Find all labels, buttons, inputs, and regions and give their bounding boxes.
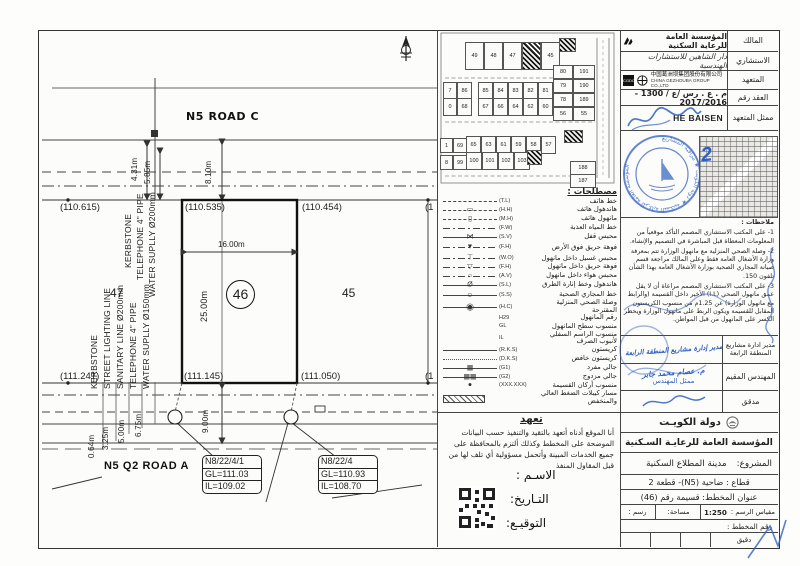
- keyplan-cell: 80: [553, 65, 573, 79]
- pledge-title: تعهد: [520, 413, 543, 425]
- keyplan-cell: 57: [541, 136, 556, 154]
- keyplan-hatch-block: [527, 150, 542, 165]
- street-lighting-icon: Ø: [441, 281, 499, 289]
- level-top-edge: (1: [425, 202, 433, 213]
- legend-label: وصلة الصحي المنزلية المقترحة: [539, 299, 617, 314]
- utility-bottom-water: WATER SUPLLY Ø150mm: [141, 284, 151, 389]
- sector-row: قطاع : ضاحية (N5)- قطعة 2: [620, 475, 778, 490]
- kerbstone-icon: [441, 346, 499, 354]
- legend-code: (F.W): [499, 225, 539, 231]
- representative-row: HE BAISEN ممثل المتعهد: [620, 106, 778, 131]
- project-name: مدينة المطلاع السكنية: [646, 459, 727, 469]
- legend-label: جالي مزدوج: [539, 373, 617, 380]
- owner-label: المالك: [727, 30, 778, 51]
- auditor-signature: [639, 393, 709, 411]
- keyplan-cell: 1: [440, 138, 453, 153]
- pledge-body: أنا الموقع أدناه أتعهد بالتقيد والتنفيذ …: [444, 427, 614, 471]
- consultant-row: دار الشاهين للاستشارات الهندسية الاستشار…: [620, 52, 778, 71]
- legend-label: مسار كيبلات الضغط العالي والمنخفض: [539, 390, 617, 405]
- keyplan-cell: 100: [466, 152, 482, 170]
- legend-label: كريستون خافض: [539, 355, 617, 362]
- legend-title: مصطلحات :: [441, 187, 617, 197]
- representative-label: ممثل المتعهد: [727, 106, 778, 130]
- keyplan-cell: 64: [508, 98, 523, 116]
- legend-code: H29: [499, 315, 539, 321]
- keyplan-mosque-hatch: [559, 38, 576, 52]
- sheet-title-text: عنوان المخطط: قسيمة رقم (46): [641, 492, 758, 502]
- keyplan-cell: 69: [453, 138, 467, 153]
- legend-label: هاندهول وخط إنارة الطرق: [539, 281, 617, 288]
- keyplan-cell: 56: [553, 107, 573, 121]
- telephone-manhole-icon: ▯: [441, 215, 499, 223]
- fire-hydrant-icon: ▼: [441, 243, 499, 251]
- legend-label: منسوب الراسم السفلي لأنبوب الصرف: [539, 331, 617, 346]
- utility-bottom-kerbstone: KERBSTONE: [89, 335, 99, 389]
- projects-director-stamp: مدير إدارة مشاريع المنطقة الرابعة: [625, 342, 723, 357]
- keyplan-cell: 60: [538, 98, 553, 116]
- legend-code: (M.H): [499, 216, 539, 222]
- keyplan-cell: 0: [443, 98, 457, 116]
- legend-code: IL: [499, 335, 539, 341]
- revision-cell-divider: [680, 533, 681, 547]
- legend-code: (T.L): [499, 198, 539, 204]
- level-bottom-center: (111.145): [184, 371, 223, 382]
- projects-director-row: مدير إدارة مشاريع المنطقة الرابعة مدير ا…: [620, 336, 778, 364]
- legend-code: (W.O): [499, 255, 539, 261]
- consultant-label: الاستشاري: [727, 52, 778, 70]
- sector-text: قطاع : ضاحية (N5)- قطعة 2: [648, 477, 749, 487]
- legend-label: رقم المانهول: [539, 314, 617, 321]
- country-name: دولة الكويـت: [659, 417, 721, 428]
- legend-label: منسوب سطح المانهول: [539, 323, 617, 330]
- manhole-gl: GL=111.03: [203, 468, 261, 481]
- manhole-number-icon: [441, 314, 499, 322]
- legend-code: (R.K.S): [499, 347, 539, 353]
- contractor-row: CGDC 中国葛洲坝集团股份有限公司 CHINA GEZHOUBA GROUP …: [620, 71, 778, 90]
- dim-585: 5.85m: [143, 161, 152, 184]
- keyplan-cell: 66: [493, 98, 508, 116]
- authority-round-stamp: المؤسسة العامة للرعاية السكنية ★ دولة ال…: [621, 133, 703, 215]
- double-gully-icon: ▦▦: [441, 373, 499, 381]
- legend-label: خط هاتف: [539, 198, 617, 205]
- legend-code: (H.C): [499, 304, 539, 310]
- keyplan-cell: 191: [573, 65, 595, 79]
- manhole-gl: GL=110.93: [319, 468, 377, 481]
- blue-check-mark: [742, 512, 792, 564]
- drawn-by-label: رسم :: [629, 508, 647, 516]
- stop-valve-icon: ⋈: [441, 233, 499, 241]
- projects-director-label: مدير ادارة مشاريع المنطقة الرابعة: [722, 336, 778, 363]
- utility-top-water: WATER SUPLLY Ø200mm: [147, 192, 157, 297]
- ground-level-icon: [441, 322, 499, 330]
- manhole-il: IL=109.02: [203, 480, 261, 493]
- auditor-row: مدقق: [620, 391, 778, 413]
- resident-engineer-row: م. عصام محمد جابر ممثل المهندس المهندس ا…: [620, 364, 778, 391]
- manhole-id: N8/22/4/1: [203, 456, 261, 468]
- manhole-callout-2: N8/22/4 GL=110.93 IL=108.70: [318, 455, 378, 494]
- keyplan-cell: 55: [573, 107, 595, 121]
- dim-675: 6.75m: [134, 414, 143, 437]
- keyplan-cell: 78: [553, 93, 573, 107]
- keyplan-cell: 99: [453, 155, 467, 170]
- legend-label: محبس قفل: [539, 233, 617, 240]
- manhole-il: IL=108.70: [319, 480, 377, 493]
- blue-edge-scribble: [763, 245, 783, 345]
- keyplan-cell-187: 187: [570, 174, 596, 188]
- level-top-center: (110.535): [185, 202, 225, 213]
- keyplan-cell: 101: [482, 152, 498, 170]
- gezhouba-emblem-icon: [637, 75, 648, 86]
- drawing-sheet-page: N5 ROAD C N5 Q2 ROAD A (110.615) (110.53…: [0, 0, 800, 566]
- dim-25m: 25.00m: [199, 291, 209, 322]
- legend-label: هاندهول هاتف: [539, 206, 617, 213]
- owner-row: المؤسسة العامة للرعاية السكنية المالك: [620, 30, 778, 52]
- level-bottom-right: (111.050): [301, 371, 340, 382]
- contractor-name-en: CHINA GEZHOUBA GROUP CO.,LTD: [651, 78, 727, 88]
- legend-code: (S.V): [499, 234, 539, 240]
- road-label-bottom: N5 Q2 ROAD A: [104, 460, 189, 472]
- project-label: المشروع:: [737, 459, 772, 469]
- legend-code: (A.V): [499, 273, 539, 279]
- authority-row: المؤسسة العامة للرعايـة السـكنية: [620, 433, 778, 453]
- legend-label: فوهة حريق فوق الأرض: [539, 244, 617, 251]
- dropped-kerb-icon: [441, 355, 499, 363]
- dim-810: 8.10m: [204, 161, 213, 184]
- handwritten-sector-mark: 2: [700, 143, 713, 167]
- invert-level-icon: [441, 334, 499, 342]
- authority-name: المؤسسة العامة للرعايـة السـكنية: [625, 438, 773, 448]
- fresh-water-line-icon: [441, 224, 499, 232]
- legend-label: منسوب أركان القسيمة: [539, 382, 617, 389]
- keyplan-cell-188: 188: [570, 161, 596, 175]
- dim-325: 3.25m: [101, 427, 110, 450]
- level-bottom-edge: (1: [425, 371, 433, 382]
- legend-code: (G2): [499, 374, 539, 380]
- house-connection-icon: ◉: [441, 303, 499, 311]
- legend-code: (S.L): [499, 282, 539, 288]
- sheet-title-row: عنوان المخطط: قسيمة رقم (46): [620, 490, 778, 505]
- scale-value: 1:250: [704, 508, 727, 517]
- level-top-left: (110.615): [60, 202, 100, 213]
- keyplan-cell: 8: [440, 155, 453, 170]
- telephone-line-icon: [441, 197, 499, 205]
- sewer-line-icon: ○: [441, 291, 499, 299]
- pledge-name-label: الاسـم :: [516, 468, 556, 482]
- legend-label: خط المياه العذبة: [539, 224, 617, 231]
- dim-064: 0.64m: [87, 435, 96, 458]
- pahw-logo: [623, 33, 634, 48]
- fire-hydrant-manhole-icon: ▽: [441, 263, 499, 271]
- legend-label: فوهة حريق داخل مانهول: [539, 263, 617, 270]
- legend-label: مانهول هاتف: [539, 215, 617, 222]
- legend: مصطلحات : (T.L)خط هاتف ▭(H.H)هاندهول هات…: [441, 187, 617, 406]
- utility-top-telephone: TELEPHONE 4" PIPE: [135, 193, 145, 280]
- legend-code: (H.H): [499, 207, 539, 213]
- dim-500: 5.00m: [117, 420, 126, 443]
- dim-900: 9.00m: [201, 410, 210, 433]
- utility-top-kerbstone: KERBSTONE: [123, 214, 133, 268]
- auditor-label: مدقق: [722, 391, 778, 412]
- utility-bottom-telephone: TELEPHONE 4" PIPE: [128, 302, 138, 389]
- legend-code: (G1): [499, 365, 539, 371]
- resident-engineer-label: المهندس المقيم: [722, 364, 778, 390]
- legend-label: محبس هواء داخل مانهول: [539, 272, 617, 279]
- qr-code: [457, 486, 497, 530]
- legend-label: محبس غسيل داخل مانهول: [539, 255, 617, 262]
- country-row: دولة الكويـت: [620, 413, 778, 433]
- revision-cell-divider: [650, 533, 651, 547]
- north-arrow-icon: [394, 35, 418, 63]
- dim-431: 4.31m: [130, 158, 139, 181]
- road-label-top: N5 ROAD C: [186, 110, 259, 123]
- manhole-callout-1: N8/22/4/1 GL=111.03 IL=109.02: [202, 455, 262, 494]
- keyplan-cell: 189: [573, 93, 595, 107]
- keyplan-cell: 49: [465, 42, 484, 70]
- air-valve-icon: ○: [441, 272, 499, 280]
- kuwait-emblem-icon: [726, 416, 739, 429]
- keyplan-cell-394: 394: [564, 130, 583, 143]
- utility-bottom-streetlight: STREET LIGHTING LINE: [102, 288, 112, 389]
- manhole-id: N8/22/4: [319, 456, 377, 468]
- legend-code: (F.H): [499, 264, 539, 270]
- pledge-date-label: التـاريخ:: [510, 492, 549, 506]
- keyplan-cell: 48: [484, 42, 503, 70]
- keyplan-cell: 102: [498, 152, 514, 170]
- note-item: 2- وصلة الصحي المنزلية مع مانهول الوزارة…: [622, 248, 774, 281]
- keyplan-cell: 68: [457, 98, 472, 116]
- contractor-label: المتعهد: [727, 71, 778, 89]
- level-top-right: (110.454): [302, 202, 342, 213]
- washout-valve-icon: ⊤: [441, 254, 499, 262]
- keyplan-cell: 47: [503, 42, 522, 70]
- legend-code: (F.H): [499, 244, 539, 250]
- legend-code: (S.S): [499, 292, 539, 298]
- telephone-handhole-icon: ▭: [441, 206, 499, 214]
- engineer-role: ممثل المهندس: [653, 377, 695, 385]
- owner-name: المؤسسة العامة للرعاية السكنية: [637, 32, 727, 50]
- note-item: 1- على المكتب الاستشاري المصمم التأكد مو…: [622, 229, 774, 246]
- keyplan-cell: 67: [478, 98, 493, 116]
- plot-46-badge: 46: [226, 280, 255, 309]
- cgdc-logo: CGDC: [623, 75, 634, 86]
- legend-label: كريستون: [539, 346, 617, 353]
- legend-code: (XXX.XXX): [499, 382, 539, 388]
- legend-code: GL: [499, 323, 539, 329]
- dim-16m: 16.00m: [218, 240, 245, 249]
- consultant-name: دار الشاهين للاستشارات الهندسية: [620, 52, 727, 70]
- single-gully-icon: ▦: [441, 364, 499, 372]
- keyplan-cell-highlight-46: 46: [522, 42, 541, 70]
- legend-label: جالي مفرد: [539, 364, 617, 371]
- representative-signature: [624, 104, 704, 134]
- notes-title: ملاحظات :: [622, 219, 774, 227]
- contract-number-label: العقد رقم: [727, 90, 778, 105]
- keyplan-cell: 62: [523, 98, 538, 116]
- keyplan-cell: 79: [553, 79, 573, 93]
- keyplan-cell: 190: [573, 79, 595, 93]
- pledge-signature-label: التوقيـع:: [506, 516, 546, 530]
- project-row: المشروع: مدينة المطلاع السكنية: [620, 453, 778, 475]
- plot-45-label: 45: [342, 286, 355, 300]
- utility-bottom-sanitary: SANITARY LINE Ø200mm: [115, 285, 125, 389]
- area-label: مساحة:: [668, 508, 690, 516]
- plot-corner-level-icon: ●: [441, 381, 499, 389]
- legend-code: (D.K.S): [499, 356, 539, 362]
- hv-lv-cable-route-icon: [441, 394, 499, 402]
- key-plan: 49 48 47 46 45 7 86 85 84 83 82 81 0 68 …: [437, 30, 620, 187]
